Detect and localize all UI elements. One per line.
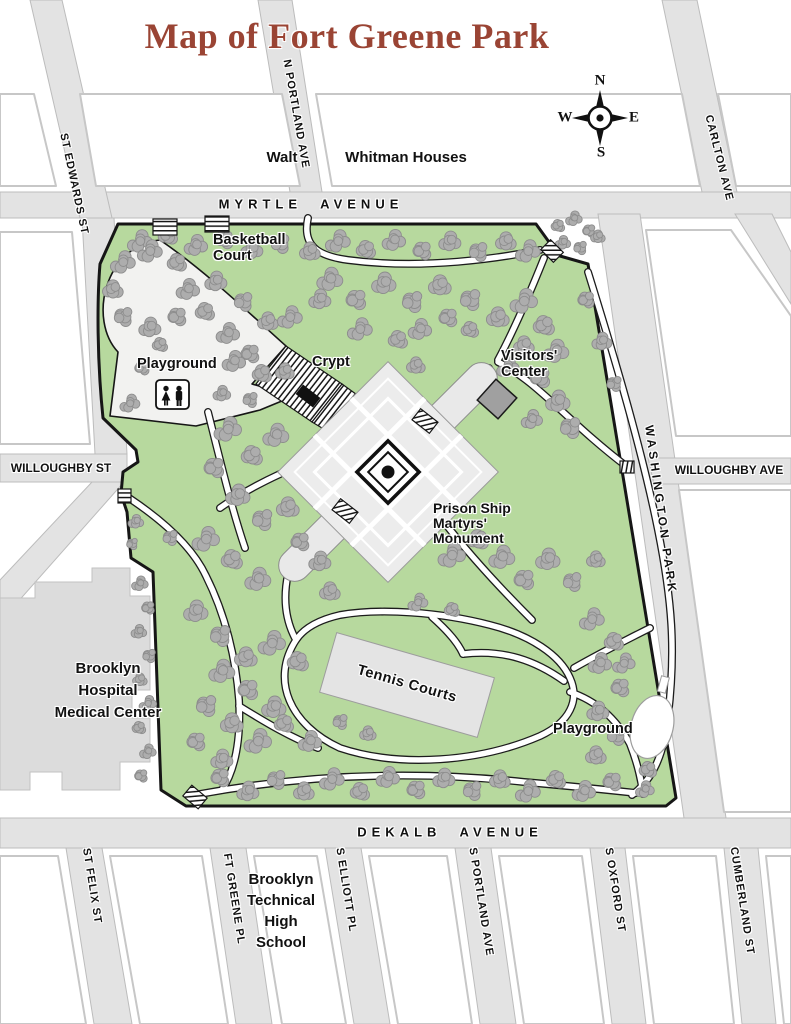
high-school-line4: School xyxy=(211,932,351,953)
fort-greene-park-map: Map of Fort Greene Park N E S W Walt Whi… xyxy=(0,0,791,1024)
compass-s-label: S xyxy=(597,145,605,162)
hospital-label: Brooklyn Hospital Medical Center xyxy=(27,658,189,724)
hospital-line2: Hospital xyxy=(27,680,189,702)
tree-icon xyxy=(551,219,565,231)
dekalb-avenue-label: DEKALB AVENUE xyxy=(357,825,543,840)
high-school-line1: Brooklyn xyxy=(211,869,351,890)
prison-ship-monument-label: Prison Ship Martyrs' Monument xyxy=(433,501,511,546)
walt-label: Walt xyxy=(266,150,297,166)
myrtle-avenue-label: MYRTLE AVENUE xyxy=(219,197,404,212)
block-whitman xyxy=(316,94,700,186)
monument-line1: Prison Ship xyxy=(433,501,511,516)
monument-line3: Monument xyxy=(433,531,511,546)
crypt-label: Crypt xyxy=(312,354,350,370)
block xyxy=(499,856,604,1024)
compass-e-label: E xyxy=(629,110,639,127)
playground-se-label: Playground xyxy=(553,721,633,737)
high-school-line3: High xyxy=(211,911,351,932)
visitors-center-label: Visitors' Center xyxy=(501,348,557,380)
block xyxy=(633,856,734,1024)
willoughby-st-label: WILLOUGHBY ST xyxy=(11,461,111,475)
block xyxy=(0,94,56,186)
restroom-icon xyxy=(156,380,189,409)
visitors-line2: Center xyxy=(501,364,557,380)
tree-icon xyxy=(135,770,148,782)
hospital-line1: Brooklyn xyxy=(27,658,189,680)
playground-nw-label: Playground xyxy=(137,356,217,372)
page-title: Map of Fort Greene Park xyxy=(145,15,550,57)
block xyxy=(0,232,90,444)
compass-n-label: N xyxy=(595,73,606,90)
willoughby-ave-label: WILLOUGHBY AVE xyxy=(675,463,783,477)
high-school-line2: Technical xyxy=(211,890,351,911)
visitors-line1: Visitors' xyxy=(501,348,557,364)
tree-icon xyxy=(574,241,587,254)
basketball-court-label: Basketball Court xyxy=(213,232,286,264)
basketball-line2: Court xyxy=(213,248,286,264)
tree-icon xyxy=(132,576,149,591)
compass-w-label: W xyxy=(558,110,573,127)
whitman-houses-label: Whitman Houses xyxy=(345,150,467,166)
high-school-label: Brooklyn Technical High School xyxy=(211,869,351,953)
tree-icon xyxy=(127,538,138,549)
hospital-line3: Medical Center xyxy=(27,702,189,724)
monument-line2: Martyrs' xyxy=(433,516,511,531)
basketball-line1: Basketball xyxy=(213,232,286,248)
block-walt xyxy=(80,94,300,186)
